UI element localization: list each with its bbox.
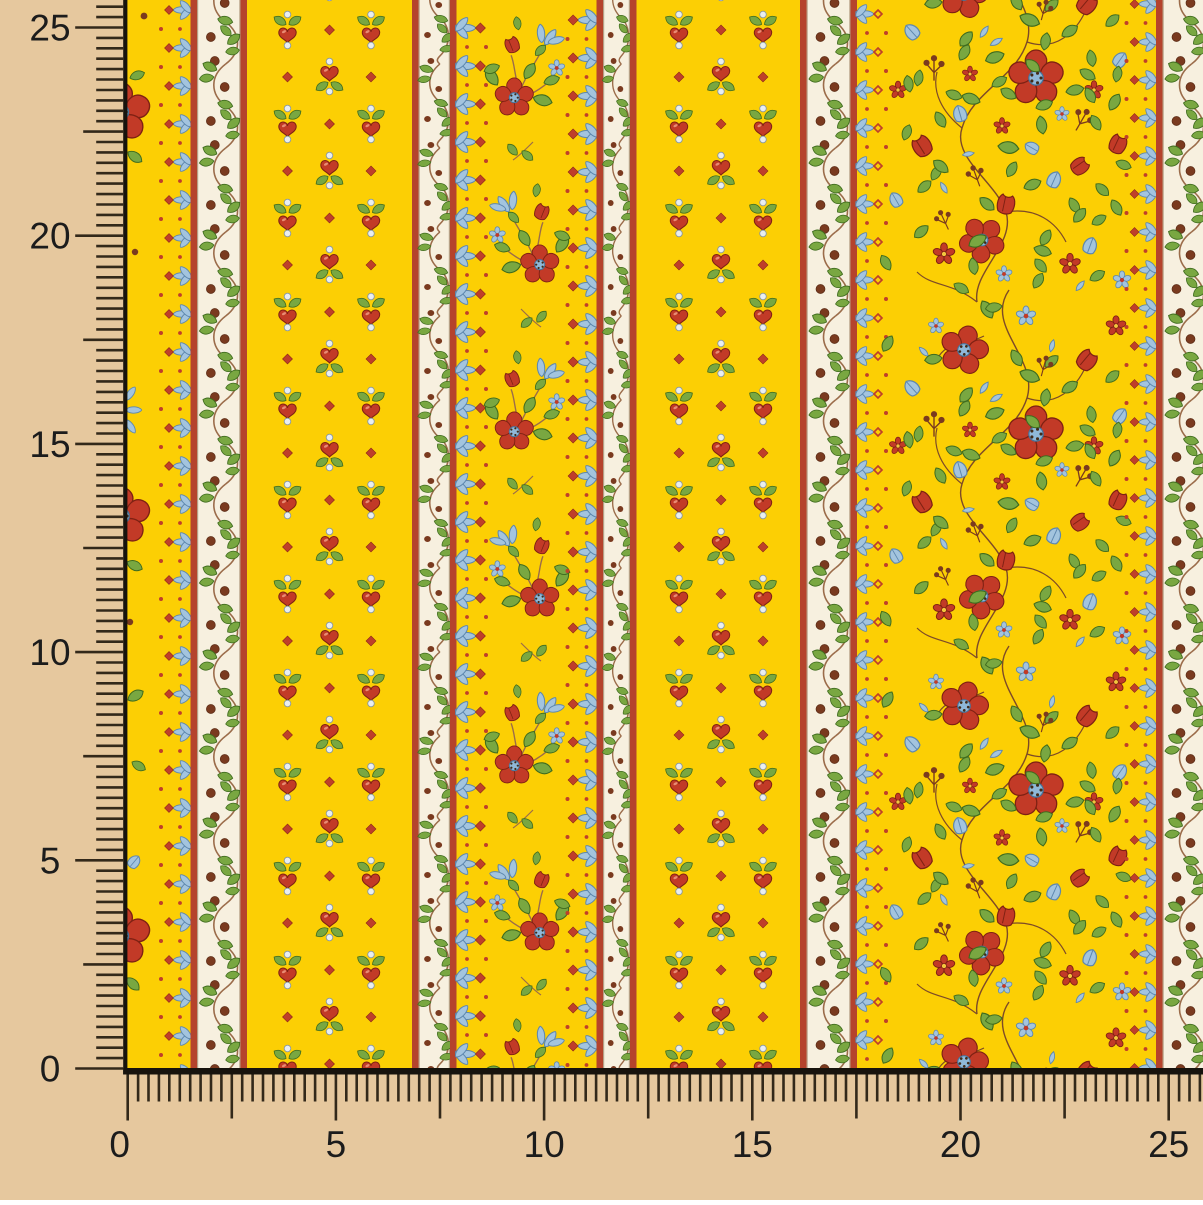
svg-text:5: 5 — [40, 840, 61, 881]
svg-text:25: 25 — [1148, 1124, 1189, 1165]
svg-text:0: 0 — [109, 1124, 130, 1165]
svg-text:10: 10 — [29, 632, 70, 673]
svg-text:10: 10 — [524, 1124, 565, 1165]
svg-text:20: 20 — [940, 1124, 981, 1165]
svg-text:15: 15 — [732, 1124, 773, 1165]
svg-text:5: 5 — [326, 1124, 347, 1165]
svg-text:20: 20 — [29, 216, 70, 257]
svg-text:0: 0 — [40, 1049, 61, 1090]
svg-text:15: 15 — [29, 424, 70, 465]
svg-text:25: 25 — [29, 8, 70, 49]
